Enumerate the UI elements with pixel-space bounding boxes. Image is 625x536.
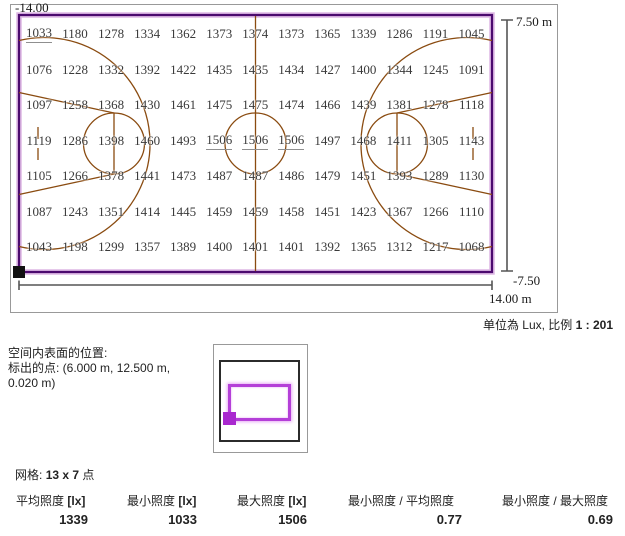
grid-value: 1389 [170, 239, 196, 255]
grid-value: 1475 [242, 97, 268, 113]
grid-value: 1278 [98, 26, 124, 42]
grid-value: 1068 [458, 239, 484, 255]
grid-value: 1217 [422, 239, 448, 255]
grid-value: 1497 [314, 133, 340, 149]
grid-value: 1479 [314, 168, 340, 184]
grid-value: 1411 [387, 133, 413, 149]
grid-value: 1474 [278, 97, 304, 113]
grid-value: 1245 [422, 62, 448, 78]
grid-value: 1401 [242, 239, 268, 255]
grid-value: 1365 [350, 239, 376, 255]
dim-label-bottom-right-vertical: -7.50 [513, 273, 540, 289]
grid-value: 1506 [206, 132, 232, 150]
grid-value: 1468 [350, 133, 376, 149]
grid-value: 1258 [62, 97, 88, 113]
grid-value: 1392 [134, 62, 160, 78]
grid-value: 1119 [26, 133, 51, 149]
stat-min-value: 1033 [127, 512, 197, 527]
grid-value: 1373 [206, 26, 232, 42]
stat-max: 最大照度 [lx] 1506 [237, 492, 307, 527]
grid-size-value: 13 x 7 [46, 468, 79, 482]
grid-value: 1243 [62, 204, 88, 220]
stat-min-max-value: 0.69 [502, 512, 613, 527]
stat-min-avg: 最小照度 / 平均照度 0.77 [348, 492, 462, 527]
grid-value: 1305 [422, 133, 448, 149]
grid-value: 1334 [134, 26, 160, 42]
stat-max-value: 1506 [237, 512, 307, 527]
stat-min: 最小照度 [lx] 1033 [127, 492, 197, 527]
grid-value: 1414 [134, 204, 160, 220]
calculation-surface-mini [228, 384, 291, 421]
grid-value: 1289 [422, 168, 448, 184]
surface-position-line1: 空间内表面的位置: [8, 346, 170, 361]
grid-value: 1398 [98, 133, 124, 149]
grid-value: 1351 [98, 204, 124, 220]
grid-value: 1400 [350, 62, 376, 78]
grid-value: 1130 [459, 168, 485, 184]
grid-value: 1373 [278, 26, 304, 42]
grid-value: 1110 [459, 204, 484, 220]
drawing-frame [11, 5, 558, 313]
grid-value: 1045 [458, 26, 484, 42]
grid-value: 1487 [206, 168, 232, 184]
grid-value: 1339 [350, 26, 376, 42]
grid-size-suffix: 点 [82, 468, 94, 482]
grid-value: 1506 [278, 132, 304, 150]
origin-marker [13, 266, 25, 278]
grid-value: 1393 [386, 168, 412, 184]
stat-avg: 平均照度 [lx] 1339 [16, 492, 88, 527]
grid-value: 1378 [98, 168, 124, 184]
stat-min-max-label: 最小照度 / 最大照度 [502, 494, 608, 508]
stat-max-label: 最大照度 [237, 494, 285, 508]
grid-value: 1091 [458, 62, 484, 78]
grid-value: 1381 [386, 97, 412, 113]
grid-value: 1033 [26, 25, 52, 43]
dim-label-bottom-left: -14.00 [15, 0, 49, 16]
unit-scale-label: 单位為 Lux, 比例 1 : 201 [483, 316, 613, 333]
grid-value: 1228 [62, 62, 88, 78]
grid-value: 1362 [170, 26, 196, 42]
grid-value: 1451 [314, 204, 340, 220]
grid-value: 1266 [62, 168, 88, 184]
grid-value: 1365 [314, 26, 340, 42]
grid-value: 1441 [134, 168, 160, 184]
grid-value: 1466 [314, 97, 340, 113]
dim-label-top-right: 7.50 m [516, 14, 552, 30]
unit-scale-value: 1 : 201 [576, 318, 613, 332]
stat-min-label: 最小照度 [127, 494, 175, 508]
grid-value: 1475 [206, 97, 232, 113]
grid-value: 1374 [242, 26, 268, 42]
stat-avg-value: 1339 [16, 512, 88, 527]
grid-value: 1459 [242, 204, 268, 220]
grid-value: 1367 [386, 204, 412, 220]
grid-value: 1493 [170, 133, 196, 149]
grid-value: 1460 [134, 133, 160, 149]
grid-value: 1180 [62, 26, 88, 42]
page: 1033118012781334136213731374137313651339… [0, 0, 625, 536]
grid-value: 1097 [26, 97, 52, 113]
grid-value: 1299 [98, 239, 124, 255]
grid-value: 1105 [26, 168, 52, 184]
grid-value: 1357 [134, 239, 160, 255]
grid-value: 1118 [459, 97, 484, 113]
surface-position-text: 空间内表面的位置: 标出的点: (6.000 m, 12.500 m, 0.02… [8, 346, 170, 391]
grid-value: 1423 [350, 204, 376, 220]
grid-value: 1430 [134, 97, 160, 113]
origin-marker-mini [223, 412, 236, 425]
stat-min-avg-label: 最小照度 / 平均照度 [348, 494, 454, 508]
stat-min-avg-value: 0.77 [348, 512, 462, 527]
stat-min-unit: [lx] [178, 494, 196, 508]
grid-value: 1344 [386, 62, 412, 78]
grid-value: 1312 [386, 239, 412, 255]
grid-value: 1458 [278, 204, 304, 220]
stat-avg-unit: [lx] [67, 494, 85, 508]
grid-value: 1076 [26, 62, 52, 78]
grid-size-prefix: 网格: [15, 468, 42, 482]
grid-value: 1435 [242, 62, 268, 78]
grid-value: 1087 [26, 204, 52, 220]
grid-value: 1392 [314, 239, 340, 255]
grid-value: 1435 [206, 62, 232, 78]
grid-value: 1459 [206, 204, 232, 220]
grid-value: 1422 [170, 62, 196, 78]
grid-value: 1486 [278, 168, 304, 184]
inset-room-plan [213, 344, 308, 453]
dim-label-bottom-right-horizontal: 14.00 m [489, 291, 532, 307]
grid-value: 1445 [170, 204, 196, 220]
grid-value: 1286 [62, 133, 88, 149]
grid-value: 1439 [350, 97, 376, 113]
grid-value: 1427 [314, 62, 340, 78]
stat-avg-label: 平均照度 [16, 494, 64, 508]
surface-position-line3: 0.020 m) [8, 376, 170, 391]
grid-value: 1278 [422, 97, 448, 113]
grid-value: 1266 [422, 204, 448, 220]
stat-max-unit: [lx] [288, 494, 306, 508]
grid-value: 1401 [278, 239, 304, 255]
grid-value: 1043 [26, 239, 52, 255]
stat-min-max: 最小照度 / 最大照度 0.69 [502, 492, 613, 527]
grid-size-label: 网格: 13 x 7 点 [15, 466, 94, 483]
grid-value: 1368 [98, 97, 124, 113]
unit-scale-prefix: 单位為 Lux, 比例 [483, 318, 572, 332]
grid-value: 1143 [459, 133, 485, 149]
grid-value: 1461 [170, 97, 196, 113]
grid-value: 1332 [98, 62, 124, 78]
grid-value: 1506 [242, 132, 268, 150]
grid-value: 1198 [62, 239, 88, 255]
value-chart-drawing: 1033118012781334136213731374137313651339… [0, 0, 625, 330]
grid-value: 1473 [170, 168, 196, 184]
grid-value: 1400 [206, 239, 232, 255]
grid-value: 1286 [386, 26, 412, 42]
grid-value: 1191 [423, 26, 449, 42]
grid-value: 1487 [242, 168, 268, 184]
surface-position-line2: 标出的点: (6.000 m, 12.500 m, [8, 361, 170, 376]
grid-value: 1434 [278, 62, 304, 78]
grid-value: 1451 [350, 168, 376, 184]
